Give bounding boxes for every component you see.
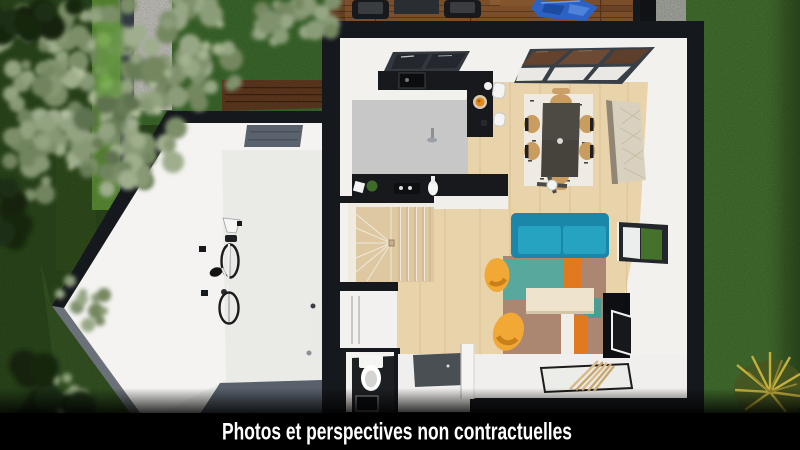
svg-text:Photos et perspectives non con: Photos et perspectives non contractuelle… — [222, 419, 572, 445]
